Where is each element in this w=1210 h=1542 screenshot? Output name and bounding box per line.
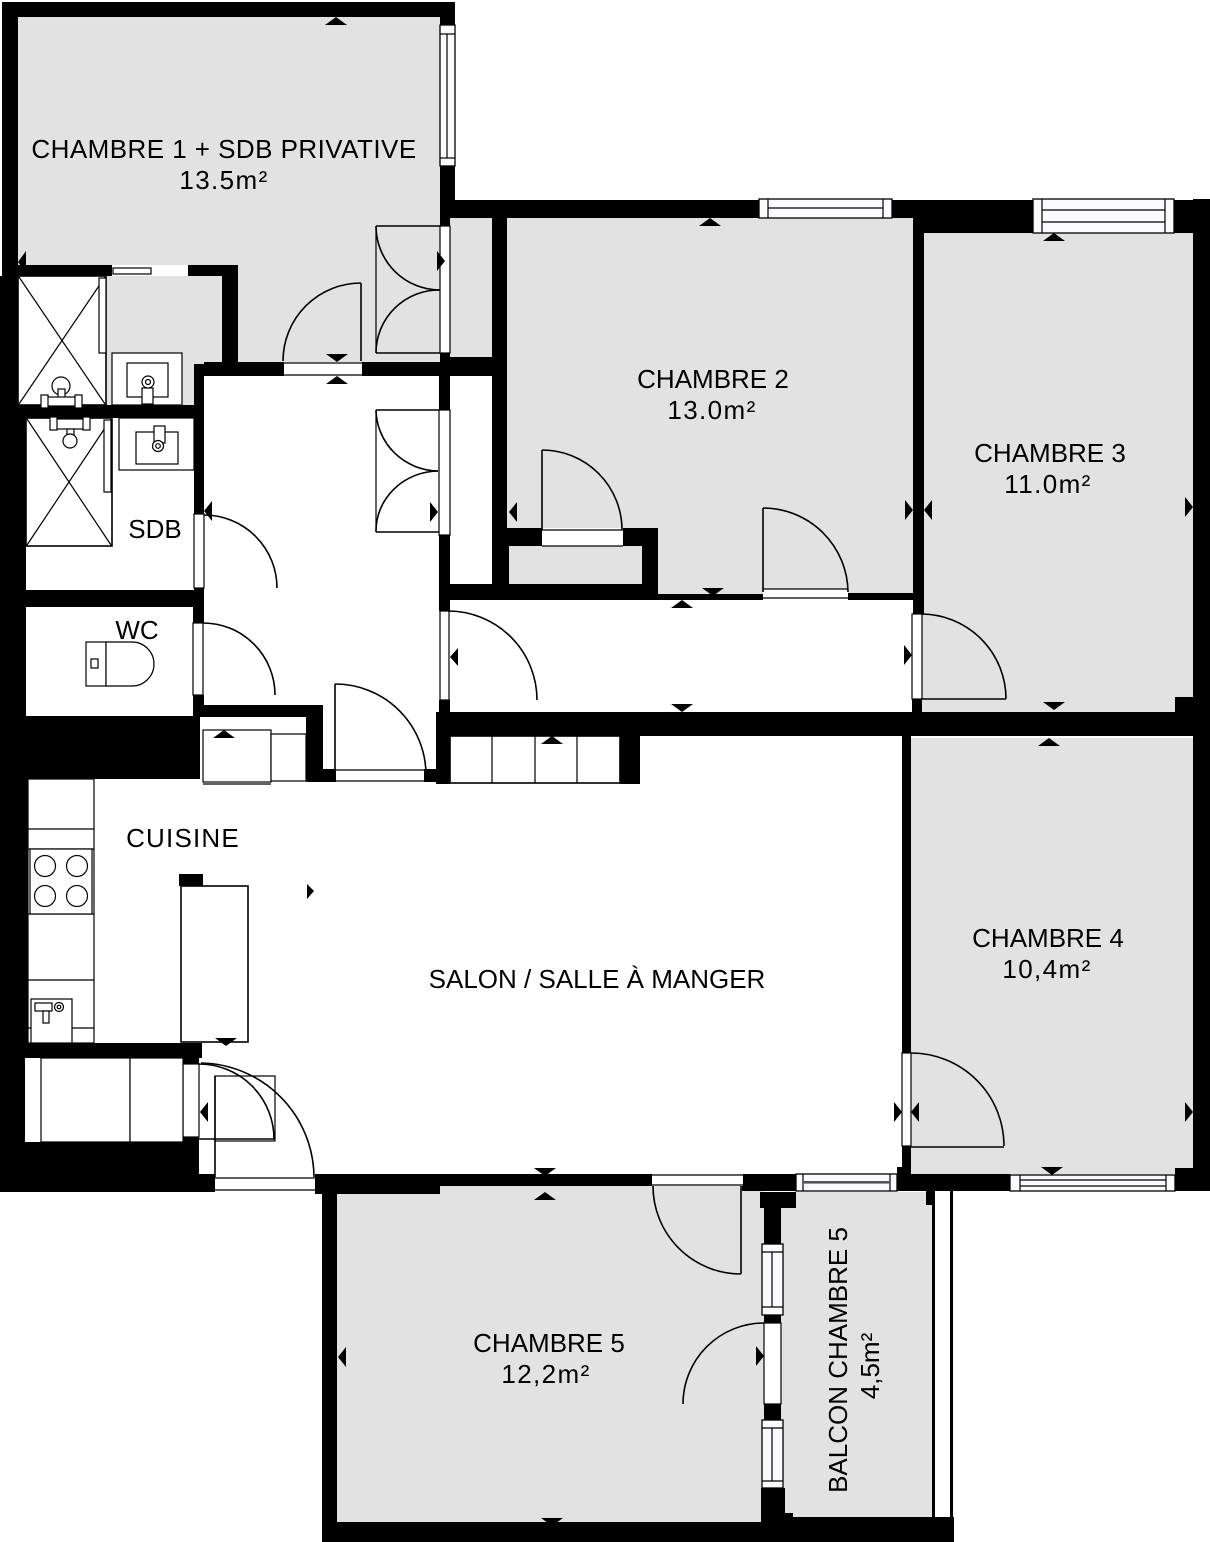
svg-text:13.5m²: 13.5m² (179, 165, 268, 195)
svg-text:BALCON CHAMBRE 5: BALCON CHAMBRE 5 (823, 1227, 853, 1493)
svg-text:CHAMBRE 1 + SDB PRIVATIVE: CHAMBRE 1 + SDB PRIVATIVE (31, 134, 416, 164)
svg-text:CHAMBRE 5: CHAMBRE 5 (473, 1328, 625, 1358)
svg-text:CHAMBRE 4: CHAMBRE 4 (972, 923, 1124, 953)
svg-text:11.0m²: 11.0m² (1004, 469, 1091, 499)
svg-text:CUISINE: CUISINE (126, 823, 240, 853)
svg-text:4,5m²: 4,5m² (855, 1332, 885, 1399)
svg-text:CHAMBRE 3: CHAMBRE 3 (974, 438, 1126, 468)
svg-text:SDB: SDB (128, 514, 181, 544)
svg-text:SALON / SALLE À MANGER: SALON / SALLE À MANGER (429, 964, 766, 994)
svg-text:13.0m²: 13.0m² (667, 395, 756, 425)
svg-text:WC: WC (115, 615, 158, 645)
svg-text:10,4m²: 10,4m² (1002, 954, 1091, 984)
svg-text:CHAMBRE 2: CHAMBRE 2 (637, 364, 789, 394)
svg-text:12,2m²: 12,2m² (501, 1359, 590, 1389)
